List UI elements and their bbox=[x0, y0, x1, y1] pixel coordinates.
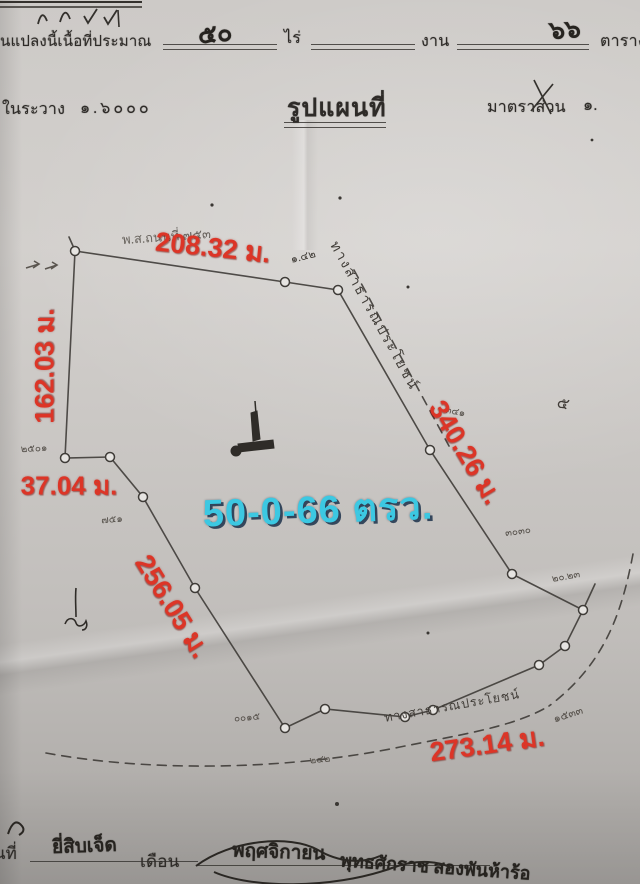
pencil-note: ๒๔๒ bbox=[309, 751, 331, 768]
top-margin-marks bbox=[0, 2, 142, 27]
measurement-left: 162.03 ม. bbox=[23, 308, 66, 423]
monument-symbol bbox=[231, 401, 274, 456]
pencil-note: ๗๕๑ bbox=[101, 512, 124, 529]
parcel-area-label: 50-0-66 ตรว. bbox=[202, 474, 435, 543]
pencil-note: ๒๕๐๑ bbox=[20, 441, 47, 457]
pencil-note: ๐๐๑๕ bbox=[233, 709, 260, 726]
pencil-arrow-marks bbox=[26, 261, 57, 269]
tree-symbol bbox=[65, 588, 87, 630]
scanned-land-survey-document: นแปลงนี้เนื้อที่ประมาณ ๕๐ ไร่ งาน ๖๖ ตาร… bbox=[0, 0, 640, 884]
measurement-left-short: 37.04 ม. bbox=[21, 466, 118, 507]
signature-flourish bbox=[8, 822, 452, 884]
scale-strike-mark bbox=[531, 80, 553, 114]
